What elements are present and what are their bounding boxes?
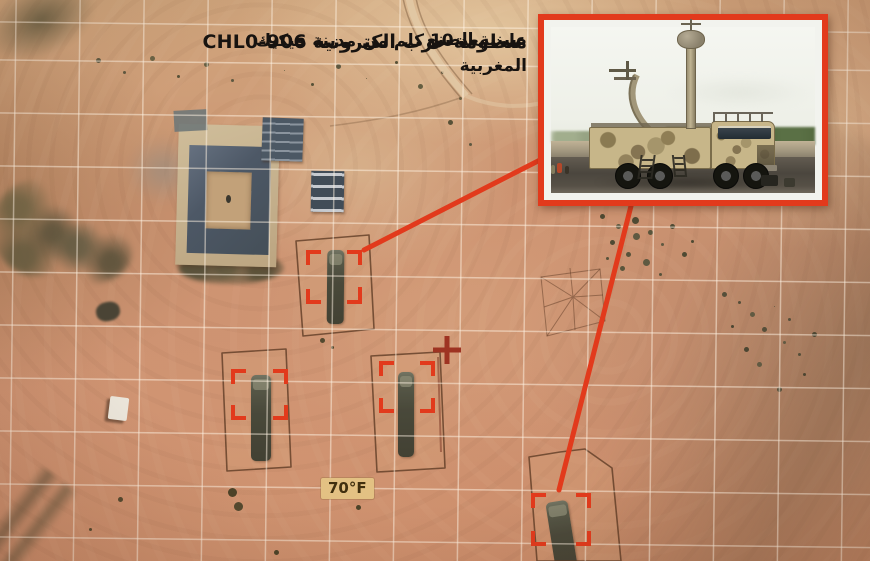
radar-truck-photo — [551, 27, 815, 193]
target-bracket-icon — [308, 252, 360, 302]
person-figure — [557, 163, 562, 173]
windshield — [718, 126, 771, 139]
ground-equipment — [784, 178, 795, 187]
person-figure — [565, 166, 569, 174]
wheel — [713, 163, 739, 189]
access-ladder — [672, 155, 687, 177]
connector-line — [364, 160, 540, 250]
inset-photo-frame — [538, 14, 828, 206]
person-figure — [551, 165, 555, 174]
mast-tip-antenna — [690, 19, 692, 31]
radar-dome — [677, 30, 705, 49]
weather-badge: 70°F — [321, 478, 374, 499]
connector-line — [559, 206, 631, 490]
antenna-mast — [686, 45, 696, 129]
target-bracket-icon — [233, 371, 286, 418]
caption-line-location: على بعد 10 كلم من مدينة فيكيك المغربية — [187, 29, 527, 79]
crosshair-icon — [433, 336, 461, 364]
roof-rail — [713, 112, 773, 122]
mast-tip-crossbar — [681, 23, 701, 25]
ground-equipment — [761, 175, 778, 186]
target-bracket-icon — [381, 363, 433, 411]
annotated-satellite-image: 70°F منظومة حرب الكترونية CHL0-906 صينية… — [0, 0, 870, 561]
target-bracket-icon — [533, 495, 589, 544]
